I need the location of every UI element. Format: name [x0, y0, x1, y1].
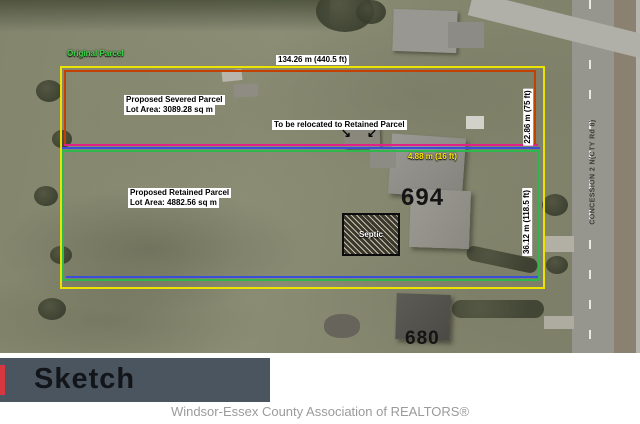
- hedge: [452, 300, 544, 318]
- retained-parcel-area: Lot Area: 4882.56 sq m: [128, 198, 219, 208]
- retained-depth-measurement: 36.12 m (118.5 ft): [522, 188, 532, 256]
- tree: [34, 186, 58, 206]
- arrow-down-right-icon: ↘: [341, 126, 351, 140]
- house-number-680: 680: [405, 328, 440, 350]
- tree: [546, 256, 568, 274]
- driveway: [544, 236, 574, 252]
- severed-depth-measurement: 22.86 m (75 ft): [523, 88, 533, 145]
- relocation-note-label: To be relocated to Retained Parcel: [272, 120, 407, 130]
- driveway: [544, 316, 574, 329]
- retained-parcel-outline: [62, 150, 540, 281]
- septic-area: Septic: [342, 213, 400, 256]
- gap-measurement-label: 4.88 m (16 ft): [408, 152, 457, 161]
- retained-parcel-label: Proposed Retained Parcel Lot Area: 4882.…: [128, 188, 231, 208]
- septic-label: Septic: [359, 230, 383, 239]
- tree: [36, 80, 62, 102]
- retained-parcel-top-line: [62, 147, 540, 149]
- tree-row: [0, 0, 330, 32]
- ground-patch: [324, 314, 360, 338]
- tree: [542, 194, 568, 216]
- footer-credit: Windsor-Essex County Association of REAL…: [0, 404, 640, 419]
- retained-parcel-title: Proposed Retained Parcel: [128, 188, 231, 198]
- retained-parcel-bottom-line: [66, 276, 538, 278]
- original-parcel-label: Original Parcel: [67, 49, 123, 58]
- red-accent-bar: [0, 365, 5, 395]
- sketch-banner: Sketch: [0, 358, 270, 402]
- house-roof: [448, 22, 484, 48]
- sketch-title: Sketch: [34, 363, 135, 396]
- house-number-694: 694: [401, 184, 444, 212]
- frontage-measurement-label: 134.26 m (440.5 ft): [276, 55, 349, 65]
- division-line: [64, 144, 538, 146]
- arrow-down-left-icon: ↙: [367, 126, 377, 140]
- severed-parcel-area: Lot Area: 3089.28 sq m: [124, 105, 215, 115]
- tree: [38, 298, 66, 320]
- severed-parcel-title: Proposed Severed Parcel: [124, 95, 225, 105]
- severed-parcel-label: Proposed Severed Parcel Lot Area: 3089.2…: [124, 95, 225, 115]
- tree: [356, 0, 386, 24]
- road-name-label: CONCESSION 2 N(CTY Rd 8): [590, 119, 597, 224]
- sketch-page: Septic Original Parcel 134.26 m (440.5 f…: [0, 0, 640, 424]
